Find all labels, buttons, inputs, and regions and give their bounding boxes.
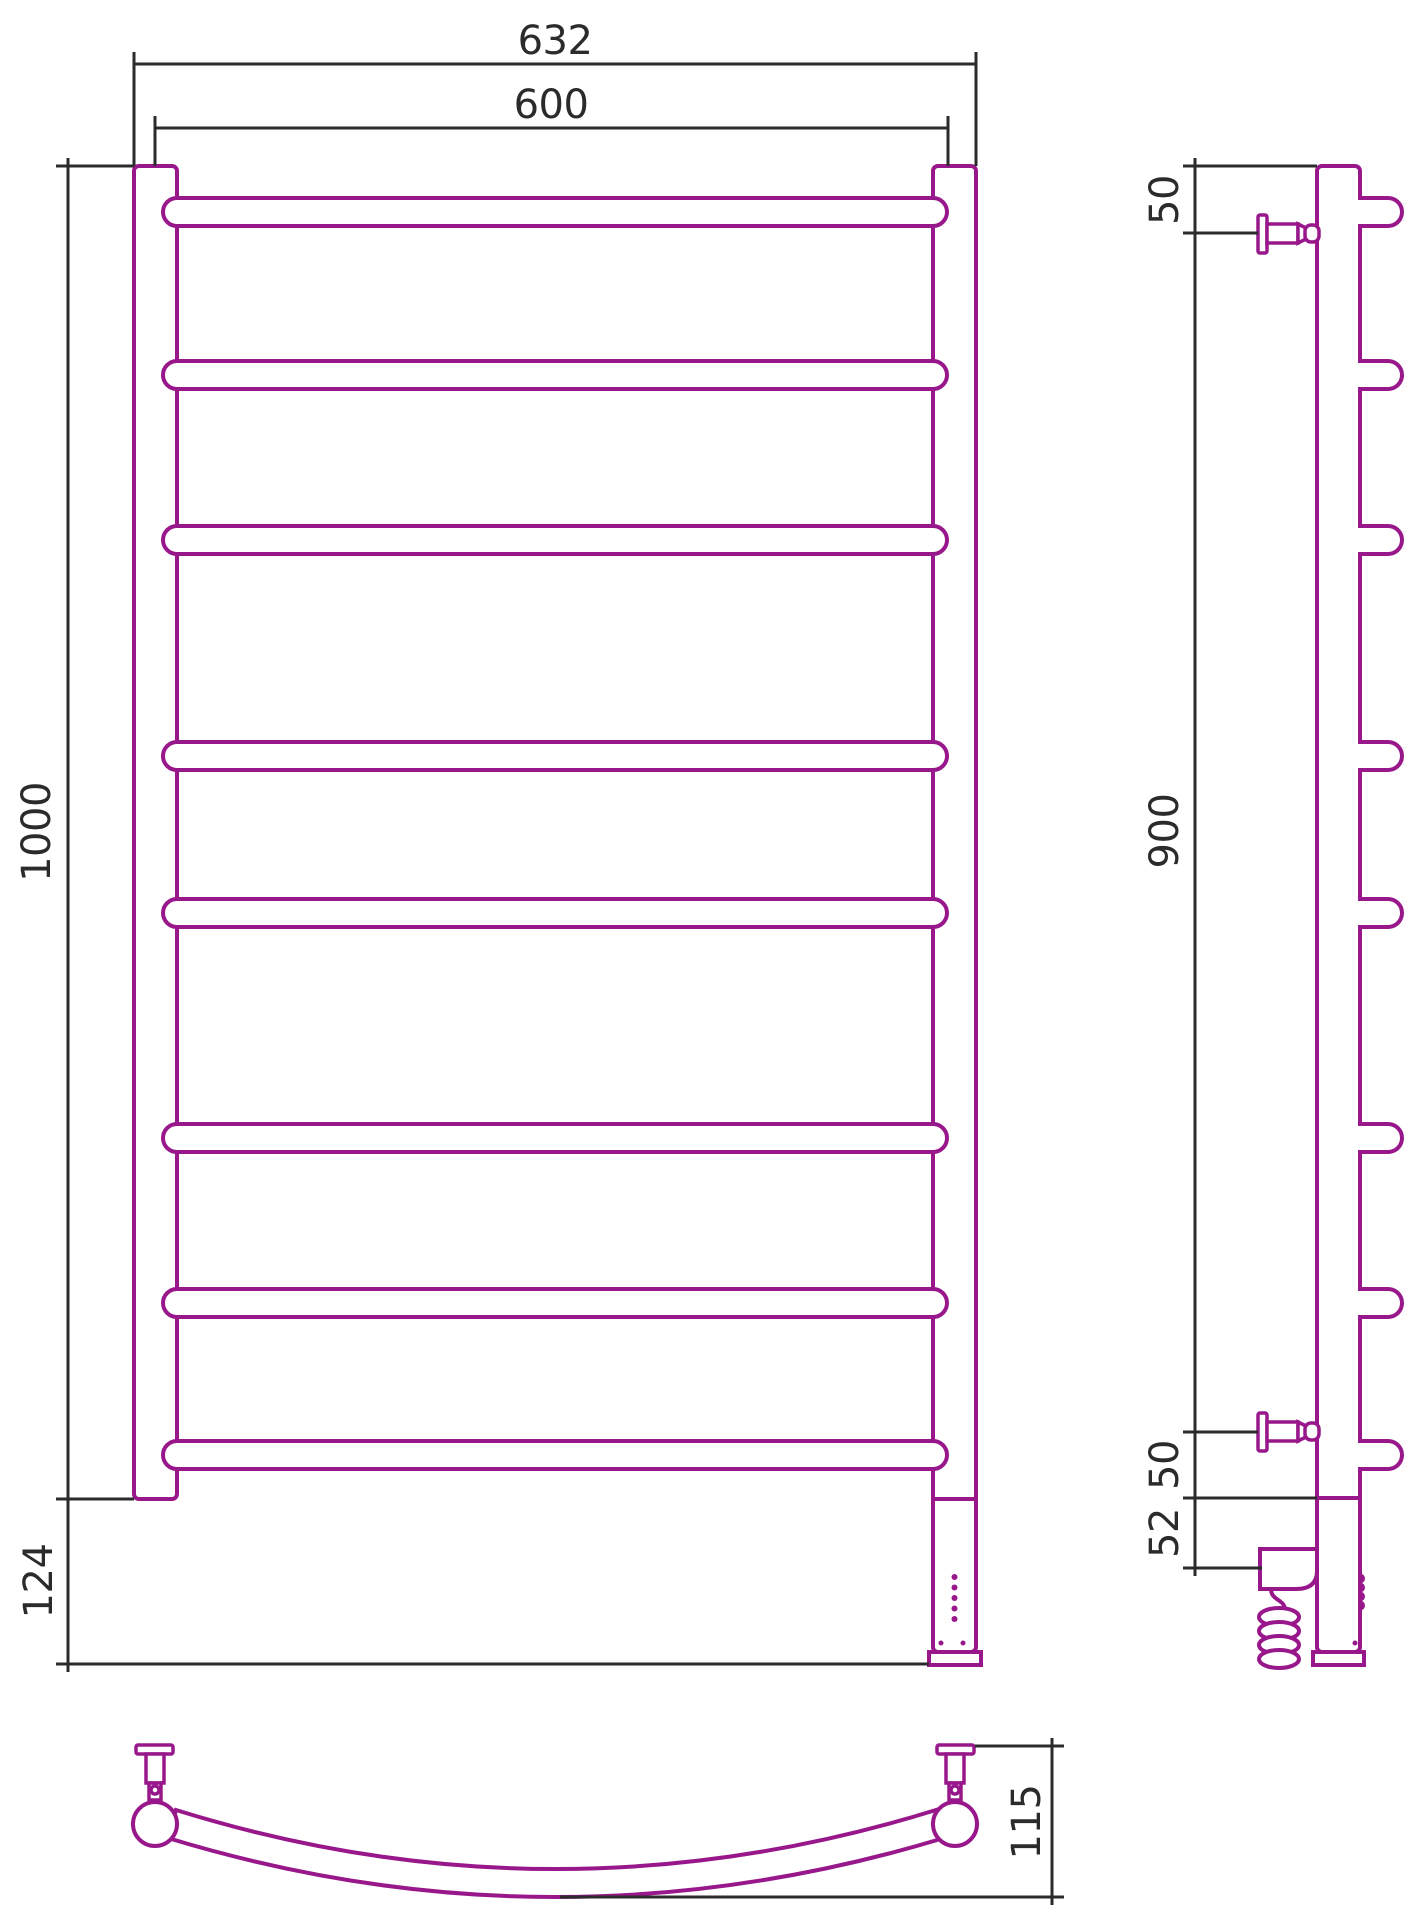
towel-bar-end [1360, 1289, 1402, 1317]
towel-bar [163, 899, 947, 927]
towel-bar [163, 361, 947, 389]
side-screw-dot [1353, 1641, 1358, 1646]
dim-632-label: 632 [518, 18, 593, 64]
heater-unit [1260, 1549, 1317, 1589]
dim-900-label: 900 [1142, 794, 1188, 869]
dim-115-label: 115 [1004, 1785, 1050, 1860]
side-bottom-flange [1313, 1652, 1364, 1665]
towel-bar [163, 526, 947, 554]
front-bars [163, 198, 947, 1469]
towel-rail-technical-drawing: 632 600 1000 124 50 900 50 52 115 [0, 0, 1421, 1920]
front-screw-dot [939, 1641, 944, 1646]
plan-curved-rail [168, 1810, 944, 1897]
towel-bar [163, 742, 947, 770]
towel-bar-end [1360, 361, 1402, 389]
drawing-page: 632 600 1000 124 50 900 50 52 115 [0, 0, 1421, 1920]
plan-right-bracket [937, 1745, 974, 1800]
indicator-dot [952, 1585, 958, 1591]
plan-left-bracket [136, 1745, 173, 1800]
side-view [1258, 166, 1402, 1668]
heater-coil-cable [1259, 1608, 1299, 1668]
indicator-dot [952, 1616, 958, 1622]
indicator-dot [952, 1574, 958, 1580]
dim-50-bottom-label: 50 [1142, 1440, 1188, 1490]
towel-bar-end [1360, 526, 1402, 554]
plan-left-post-end [133, 1802, 177, 1846]
dim-124-label: 124 [16, 1544, 62, 1619]
plan-right-post-end [933, 1802, 977, 1846]
indicator-dot [952, 1606, 958, 1612]
dim-1000-label: 1000 [14, 782, 60, 882]
dim-600-label: 600 [514, 82, 589, 128]
front-bottom-flange [929, 1652, 981, 1665]
front-screw-dot [961, 1641, 966, 1646]
towel-bar-end [1360, 742, 1402, 770]
side-rail [1317, 166, 1360, 1652]
towel-bar-end [1360, 1441, 1402, 1469]
towel-bar [163, 1441, 947, 1469]
towel-bar [163, 198, 947, 226]
indicator-dot [952, 1595, 958, 1601]
towel-bar-end [1360, 1124, 1402, 1152]
dimension-labels: 632 600 1000 124 50 900 50 52 115 [14, 18, 1188, 1859]
dimension-annotations [56, 52, 1317, 1905]
dim-52-label: 52 [1142, 1508, 1188, 1558]
side-bottom-bracket [1258, 1413, 1319, 1451]
towel-bar [163, 1289, 947, 1317]
plan-view [133, 1745, 977, 1897]
side-top-bracket [1258, 215, 1319, 253]
towel-bar-end [1360, 899, 1402, 927]
side-bar-ends [1356, 198, 1402, 1469]
towel-bar-end [1360, 198, 1402, 226]
front-view [134, 166, 981, 1665]
dim-50-top-label: 50 [1142, 175, 1188, 225]
towel-bar [163, 1124, 947, 1152]
